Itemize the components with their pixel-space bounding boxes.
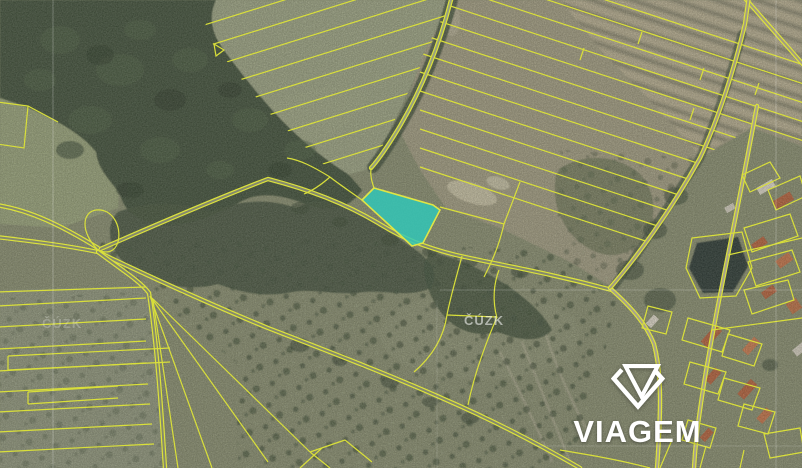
aerial-map[interactable] [0, 0, 802, 468]
map-viewport[interactable]: ČÚZK ČÚZK VIAGEM [0, 0, 802, 468]
